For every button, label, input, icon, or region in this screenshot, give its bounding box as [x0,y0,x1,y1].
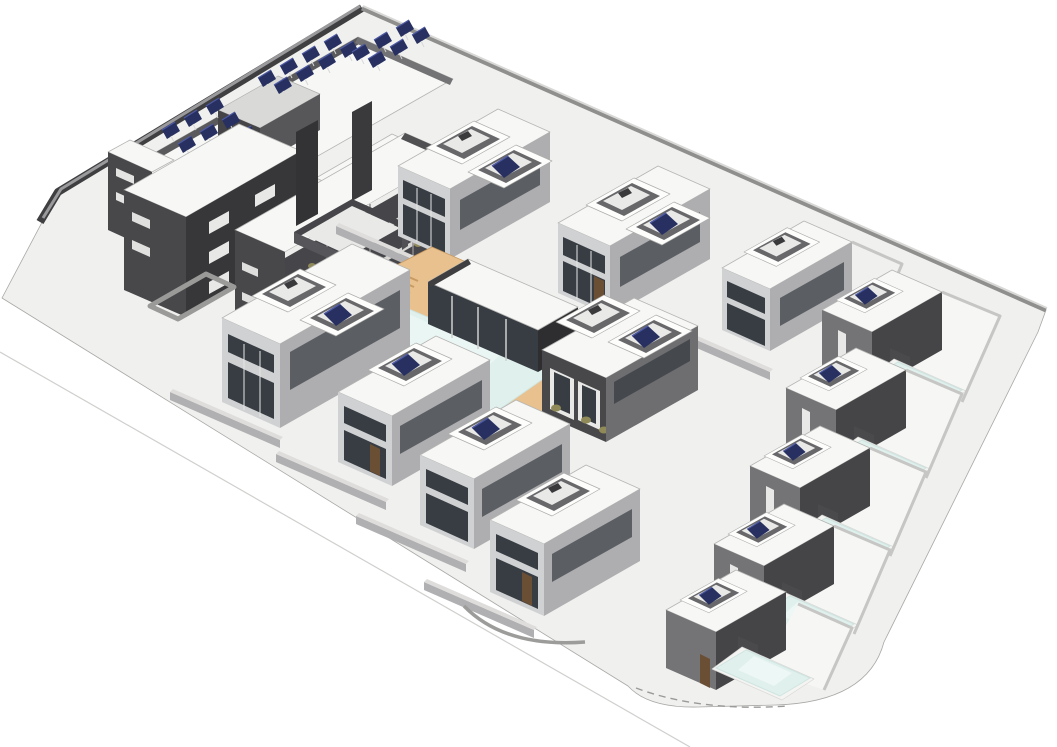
stair-core [352,101,372,201]
site-3d-rendering [0,0,1057,747]
terrace-plant [551,405,561,412]
stair-core [296,120,318,226]
rendering-stage: 3D axonometric site model of a residenti… [0,0,1057,747]
terrace-plant [581,417,591,424]
